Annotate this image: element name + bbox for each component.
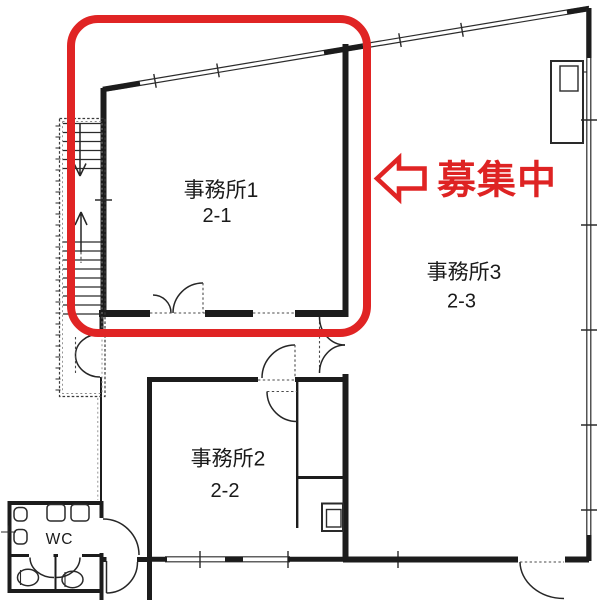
- recruiting-left-arrow-icon: [377, 158, 425, 199]
- labels: 事務所1 2-1 事務所3 2-3 事務所2 2-2 WC: [46, 179, 502, 548]
- room-office3-unit: 2-3: [447, 291, 476, 313]
- wc-door-arc: [103, 519, 139, 555]
- floor-plan-svg: 事務所1 2-1 事務所3 2-3 事務所2 2-2 WC 募集中: [0, 0, 600, 600]
- wc-urinal: [14, 508, 27, 522]
- office3-door-lower-arc: [320, 345, 346, 373]
- stair-enclosure: [60, 119, 106, 397]
- walls: [8, 44, 589, 600]
- window-walls: [103, 6, 598, 568]
- floor-plan: 事務所1 2-1 事務所3 2-3 事務所2 2-2 WC 募集中: [0, 0, 600, 600]
- wc-label: WC: [46, 531, 74, 548]
- landing-door-lower-arc: [76, 355, 101, 377]
- shaft-box: [551, 61, 587, 143]
- office1-door-arc: [173, 283, 203, 313]
- recruiting-label: 募集中: [437, 160, 557, 203]
- room-office1-unit: 2-1: [203, 205, 232, 227]
- service-panel: [322, 504, 343, 532]
- office2-top-door-arc: [262, 345, 295, 378]
- room-office1-label: 事務所1: [184, 179, 259, 202]
- wc-basin: [47, 505, 65, 522]
- room-office2-label: 事務所2: [191, 448, 266, 471]
- office1-door-small-arc: [153, 295, 171, 313]
- room-office3-label: 事務所3: [427, 261, 502, 284]
- office3-exit-door-arc: [520, 562, 564, 599]
- entrance-door-arc: [107, 562, 138, 593]
- landing-door-upper-arc: [76, 334, 101, 355]
- wc-basin: [71, 505, 89, 522]
- highlight-box: [71, 19, 367, 333]
- recruiting-highlight: 募集中: [71, 19, 557, 333]
- room-office2-unit: 2-2: [211, 480, 240, 502]
- office2-side-door-arc: [267, 392, 297, 422]
- stair-up-arrow-icon: [75, 212, 87, 252]
